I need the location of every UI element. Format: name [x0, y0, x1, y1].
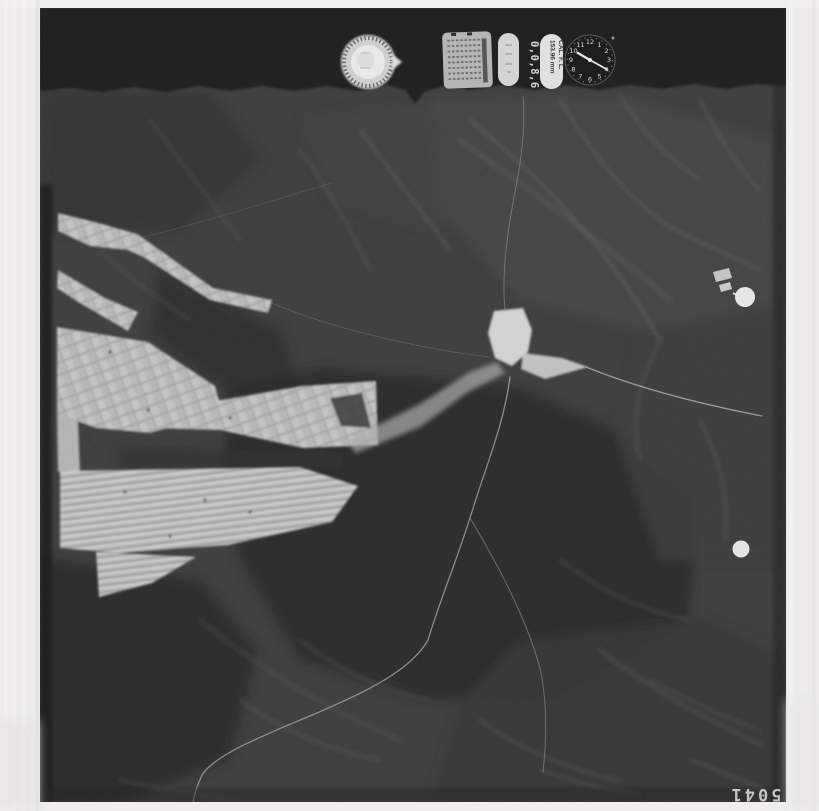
svg-text:1: 1: [597, 41, 601, 49]
frame-number: 5041: [729, 784, 782, 804]
strip-speck: [612, 37, 615, 40]
svg-text:5: 5: [597, 73, 601, 81]
focal-length-line2: 153.96 mm: [549, 40, 556, 73]
svg-text:12: 12: [586, 38, 594, 46]
margin-bottom: [0, 802, 819, 811]
exposure-counter: 0,0,8,6: [528, 41, 540, 89]
svg-text:2: 2: [604, 47, 608, 55]
margin-corner-shade-right: [786, 700, 819, 811]
svg-text:11: 11: [576, 41, 584, 49]
photo-canvas: 0,0,8,6 CAL. F. L. 153.96 mm 1 2 3 4 5 6: [0, 0, 819, 811]
aerial-photo-scan: 0,0,8,6 CAL. F. L. 153.96 mm 1 2 3 4 5 6: [0, 0, 819, 811]
record-pill: [498, 33, 519, 86]
svg-text:7: 7: [578, 73, 582, 81]
margin-top: [0, 0, 819, 8]
grain-light-overlay: [40, 8, 786, 803]
svg-text:6: 6: [588, 76, 592, 84]
svg-text:8: 8: [571, 66, 575, 74]
focal-length-plate: CAL. F. L. 153.96 mm: [540, 34, 564, 89]
svg-text:3: 3: [607, 56, 611, 64]
photo-area: 0,0,8,6 CAL. F. L. 153.96 mm 1 2 3 4 5 6: [40, 8, 786, 804]
svg-text:9: 9: [569, 56, 573, 64]
margin-corner-shade-left: [0, 720, 40, 811]
clock-dial: 1 2 3 4 5 6 7 8 9 10 11 12: [565, 35, 615, 85]
focal-length-line1: CAL. F. L.: [557, 40, 564, 70]
data-plate: [442, 31, 493, 89]
